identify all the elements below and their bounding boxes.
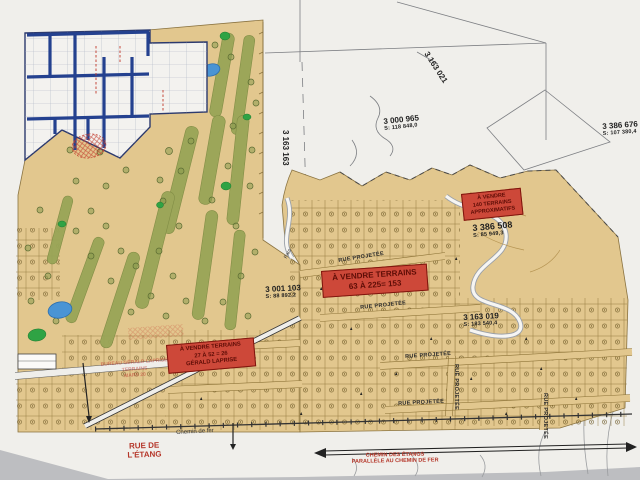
- lot-label-3163019: 3 163 019 S: 183 540,4: [463, 311, 499, 328]
- chemin-des-etangs-label: CHEMIN DES ÉTANGS PARALLÈLE AU CHEMIN DE…: [345, 451, 445, 465]
- street-label-rue-projetee-5: RUE PROJETÉE: [453, 364, 459, 410]
- clubhouse-building: [18, 354, 56, 369]
- lot-label-3386676: 3 386 676 S: 107 380,4: [602, 120, 639, 138]
- lot-label-3163163: 3 163 163: [281, 130, 290, 166]
- rue-de-letang-label: RUE DE L'ÉTANG: [118, 440, 171, 460]
- lot-label-3386508: 3 386 508 S: 85 949,3: [472, 220, 513, 240]
- street-label-rue-projetee-6: RUE PROJETÉE: [542, 393, 548, 439]
- label-line: L'ÉTANG: [118, 449, 170, 460]
- plan-photo: 3 163 021 3 000 965 S: 118 848,0 3 386 6…: [0, 0, 640, 480]
- lot-label-3001103: 3 001 103 S: 88 892,2: [265, 283, 301, 300]
- lot-number: 3 163 163: [281, 130, 290, 166]
